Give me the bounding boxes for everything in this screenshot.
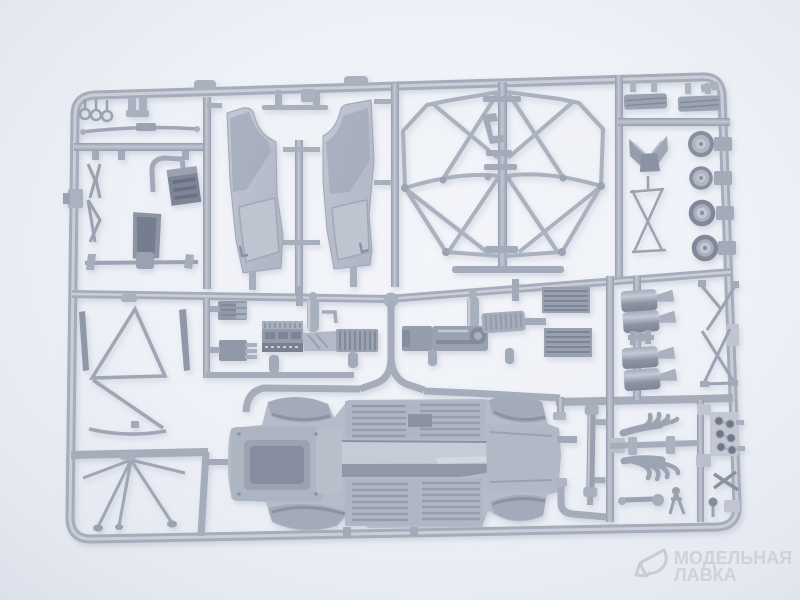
svg-text:ЛАВКА: ЛАВКА	[674, 565, 737, 585]
